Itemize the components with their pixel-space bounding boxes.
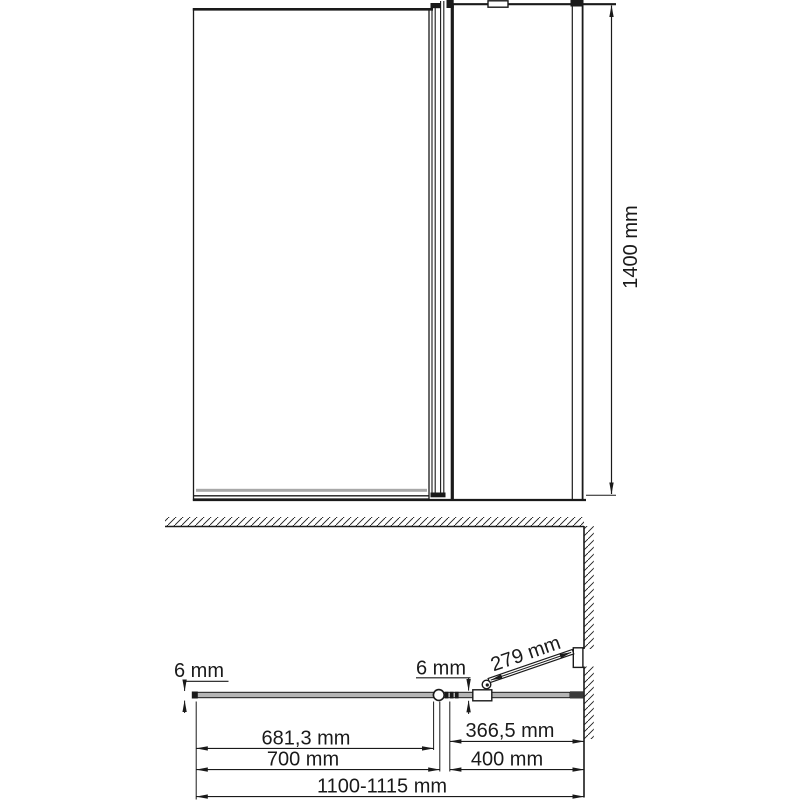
door-glass-dim-label: 366,5 mm [466, 720, 555, 742]
total-width-dim-label: 1100-1115 mm [317, 776, 447, 798]
hinge-top-cap [431, 3, 442, 8]
bottom-profile-bar [196, 489, 427, 492]
height-dim-label: 1400 mm [620, 205, 642, 288]
door-pivot-pin [486, 683, 489, 686]
wall-profile-plan [570, 691, 584, 698]
wall-hatch-vertical [584, 526, 594, 739]
door-wall-bracket [573, 648, 583, 668]
glass-thickness-fixed-label: 6 mm [174, 660, 224, 682]
fixed-section-dim-label: 700 mm [267, 749, 339, 771]
hinge-bottom-cap [431, 493, 446, 498]
door-open: 279 mm [481, 629, 574, 683]
plan-view: 279 mm 6 mm 6 mm 681,3 mm 700 mm 366,5 m… [165, 517, 594, 800]
hinge-knuckle [433, 690, 444, 701]
fixed-glass-dim-label: 681,3 mm [262, 728, 351, 750]
fixed-panel [194, 9, 430, 499]
glass-left-end-cap [192, 692, 198, 699]
hinge-bead-3 [455, 692, 459, 699]
wall-profile-top-cap [571, 0, 584, 7]
front-view: 1400 mm [193, 0, 642, 500]
door-section-dim-label: 400 mm [471, 749, 543, 771]
wall-hatch-horizontal [165, 517, 584, 527]
top-bracket [488, 1, 508, 7]
bath-screen-drawing: 1400 mm 279 mm 6 mm [0, 0, 800, 800]
hinge-bead-2 [450, 692, 454, 699]
glass-thickness-door-label: 6 mm [416, 658, 466, 680]
hinge-bead-1 [445, 692, 449, 699]
wall-recess [583, 649, 594, 667]
technical-drawing-page: 1400 mm 279 mm 6 mm [0, 0, 800, 800]
pivot-bracket [473, 690, 492, 701]
glass-plan-band [197, 692, 570, 697]
